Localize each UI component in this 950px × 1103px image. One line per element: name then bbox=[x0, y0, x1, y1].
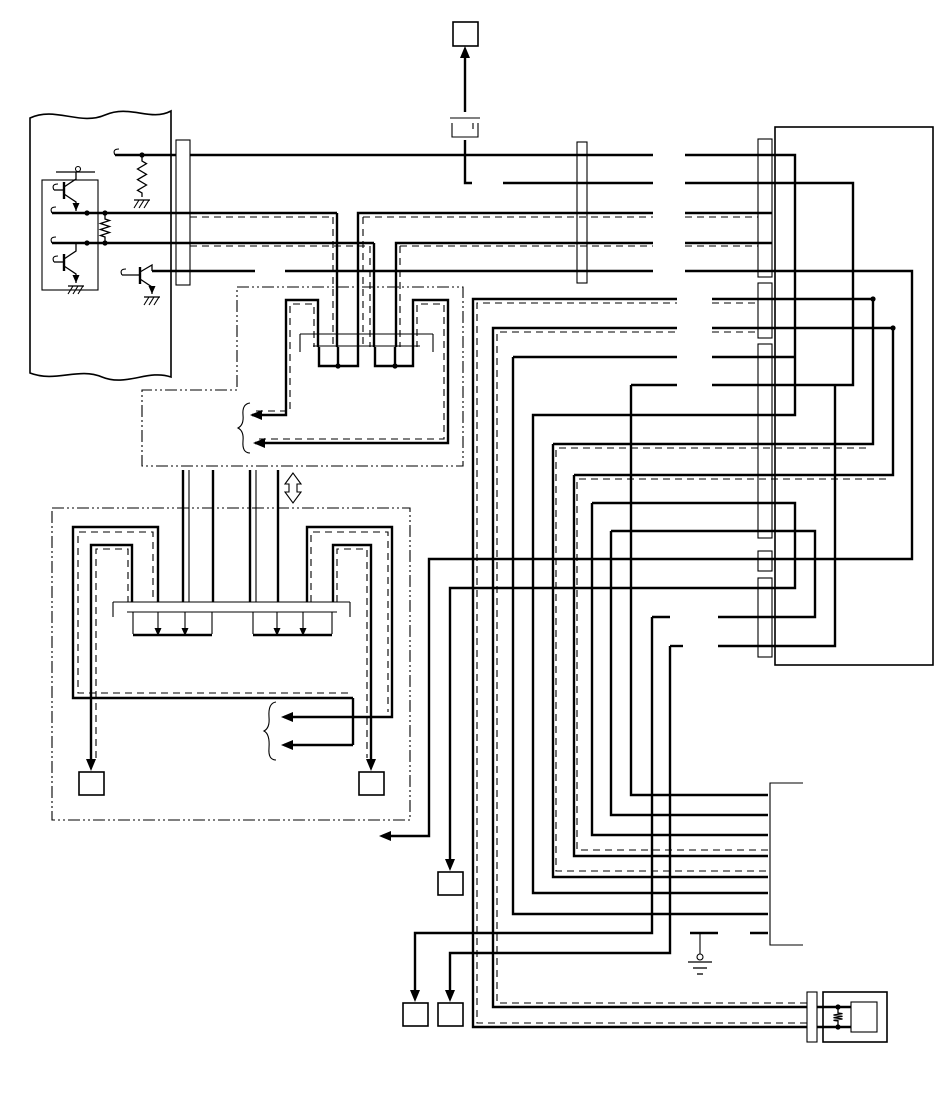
ground-ecu-top-hatch bbox=[139, 200, 144, 208]
wire-hook-icon-4 bbox=[53, 256, 58, 262]
w444 bbox=[553, 299, 873, 444]
v513-to-bracket bbox=[513, 357, 768, 914]
arrow-left-into-box2-icon bbox=[379, 831, 391, 841]
arrow-up-top-terminal-icon bbox=[460, 46, 470, 58]
w503-loop bbox=[450, 503, 795, 863]
junction-dot-6 bbox=[392, 363, 397, 368]
connector-bar-right-seg3 bbox=[758, 344, 772, 538]
junction-dot-9 bbox=[835, 1004, 840, 1009]
resistor-ecu-mid-icon bbox=[101, 215, 110, 241]
wire-hook-icon-3 bbox=[53, 184, 58, 190]
junction-dot-5 bbox=[335, 363, 340, 368]
junction-dot-4 bbox=[102, 240, 107, 245]
connector-bar-right-seg2 bbox=[758, 283, 772, 338]
open-circle-0 bbox=[76, 167, 81, 172]
t1-emitter bbox=[64, 194, 76, 211]
junction-dot-1 bbox=[84, 210, 89, 215]
t2-emitter-arrow-icon bbox=[73, 275, 80, 283]
junction-dot-0 bbox=[139, 152, 144, 157]
t1-emitter-arrow-icon bbox=[73, 203, 80, 211]
arrow-down-term-b2-icon bbox=[445, 990, 455, 1002]
t3-collector bbox=[140, 265, 152, 272]
connector-bar-right-seg1 bbox=[758, 139, 772, 277]
box2-uLi-dash bbox=[96, 549, 128, 758]
ecu-torn-outline bbox=[30, 111, 171, 380]
t3-emitter-arrow-icon bbox=[149, 286, 156, 294]
sensor-connector-bar bbox=[807, 992, 817, 1042]
arrow-left-box2-2-icon bbox=[281, 740, 293, 750]
open-circle-1 bbox=[697, 954, 703, 960]
terminal-box-shield-left bbox=[79, 772, 104, 795]
schematic-svg bbox=[0, 0, 950, 1103]
w531-loop bbox=[611, 531, 815, 617]
terminal-box-shield-right bbox=[359, 772, 384, 795]
bus-e-loop bbox=[388, 271, 912, 836]
junction-dot-10 bbox=[835, 1024, 840, 1029]
box1-shield-right bbox=[255, 300, 448, 443]
v592-to-bracket bbox=[592, 503, 768, 835]
junction-dot-8 bbox=[890, 325, 895, 330]
ic-box bbox=[42, 180, 98, 290]
wiring-diagram-canvas bbox=[0, 0, 950, 1103]
arrow-down-term-b1-icon bbox=[410, 990, 420, 1002]
terminal-box-bottom-1 bbox=[403, 1003, 428, 1026]
v611-to-bracket bbox=[611, 531, 768, 815]
ground-ecu-t3-hatch bbox=[149, 297, 154, 305]
harness-bracket bbox=[770, 783, 803, 945]
sensor-inner-box bbox=[851, 1002, 877, 1032]
w475 bbox=[574, 328, 893, 475]
ground-ecu-top-hatch bbox=[144, 200, 149, 208]
arrow-left-box2-1-icon bbox=[281, 712, 293, 722]
resistor-ecu-top-icon bbox=[138, 157, 147, 197]
junction-dot-7 bbox=[870, 296, 875, 301]
shield-box-1-boundary bbox=[142, 287, 463, 466]
v835-branch bbox=[718, 385, 835, 646]
arrow-down-shield-l-icon bbox=[86, 759, 96, 771]
bus-a-loop bbox=[533, 155, 795, 893]
brace-box2 bbox=[264, 702, 276, 760]
brace-box1 bbox=[238, 403, 250, 453]
t2-emitter bbox=[64, 266, 76, 283]
junction-dot-2 bbox=[102, 210, 107, 215]
box2-u-right-outer bbox=[284, 527, 392, 717]
box1-shield-left bbox=[252, 300, 318, 415]
connector-bar-right-seg4 bbox=[758, 551, 772, 571]
shield-pair1-solid bbox=[473, 299, 807, 1027]
top-drop-2 bbox=[465, 140, 472, 183]
bus-d-2 bbox=[396, 243, 653, 347]
wire-hook-icon-5 bbox=[121, 269, 126, 275]
arrow-down-shield-r-icon bbox=[366, 759, 376, 771]
v553-to-bracket bbox=[553, 444, 768, 877]
terminal-box-mid bbox=[438, 872, 463, 895]
terminal-box-bottom-2 bbox=[438, 1003, 463, 1026]
top-terminal-cup bbox=[452, 123, 478, 137]
t2-collector bbox=[64, 243, 76, 259]
double-arrow-link bbox=[285, 473, 301, 503]
shield-box-2-boundary bbox=[52, 508, 410, 820]
ground-ecu-top-hatch bbox=[134, 200, 139, 208]
arrow-down-term-mid-icon bbox=[445, 859, 455, 871]
ground-ecu-t3-hatch bbox=[154, 297, 159, 305]
junction-dot-3 bbox=[84, 240, 89, 245]
v670-to-box bbox=[450, 646, 670, 997]
shield-pair2-solid bbox=[493, 328, 807, 1007]
box2-uRo-dash bbox=[311, 532, 388, 712]
terminal-box-top bbox=[453, 22, 478, 46]
resistor-sensor-icon bbox=[834, 1009, 843, 1025]
box2-u-left-inner bbox=[91, 545, 132, 763]
shield-dash-444 bbox=[556, 448, 866, 871]
ground-ecu-t3-hatch bbox=[144, 297, 149, 305]
